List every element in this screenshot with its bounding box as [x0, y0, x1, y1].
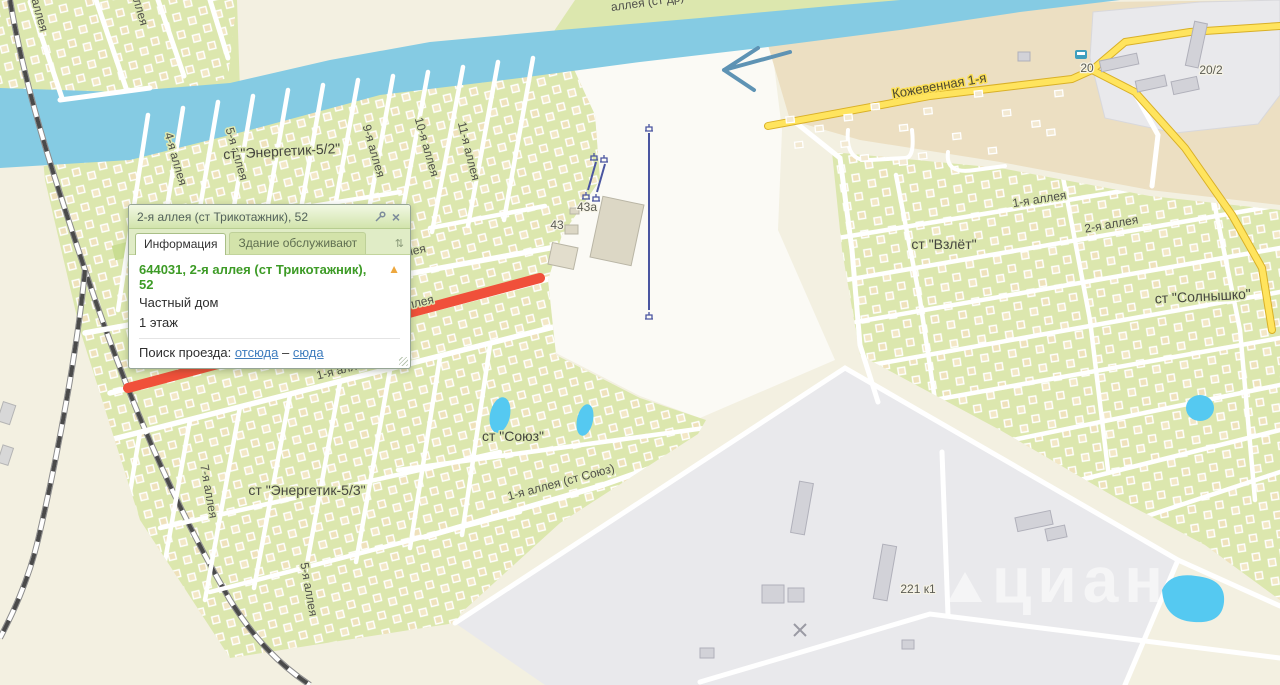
- route-label: Поиск проезда:: [139, 345, 231, 360]
- popup-tabs: Информация Здание обслуживают ⇅: [129, 229, 410, 255]
- pin-icon[interactable]: [372, 210, 388, 224]
- route-from-link[interactable]: отсюда: [235, 345, 279, 360]
- map-label: 43: [550, 218, 564, 232]
- map-label: ст "Взлёт": [911, 236, 976, 252]
- bus-stop-icon[interactable]: [1075, 50, 1087, 59]
- warning-icon: ▲: [388, 262, 400, 276]
- close-icon[interactable]: ×: [388, 210, 404, 224]
- tab-building-service[interactable]: Здание обслуживают: [229, 232, 366, 254]
- map-label: 20/2: [1199, 63, 1223, 77]
- route-to-link[interactable]: сюда: [293, 345, 324, 360]
- address-text: 644031, 2-я аллея (ст Трикотажник), 52: [139, 262, 382, 292]
- route-search-row: Поиск проезда: отсюда – сюда: [139, 338, 400, 360]
- popup-title: 2-я аллея (ст Трикотажник), 52: [137, 210, 372, 224]
- map-label: 221 к1: [900, 582, 936, 596]
- info-popup: 2-я аллея (ст Трикотажник), 52 × Информа…: [128, 204, 411, 369]
- route-dash: –: [282, 345, 289, 360]
- resize-grip-icon[interactable]: [399, 357, 408, 366]
- popup-header: 2-я аллея (ст Трикотажник), 52 ×: [129, 205, 410, 229]
- building-type: Частный дом: [139, 294, 400, 312]
- tab-information[interactable]: Информация: [135, 233, 226, 255]
- popup-body: 644031, 2-я аллея (ст Трикотажник), 52 ▲…: [129, 255, 410, 368]
- floors: 1 этаж: [139, 314, 400, 332]
- map-label: ст "Союз": [482, 428, 544, 444]
- map-label: ст "Энергетик-5/3": [248, 482, 365, 498]
- tabs-dropdown-icon[interactable]: ⇅: [395, 237, 404, 254]
- map-label: 43а: [577, 200, 597, 214]
- map-label: 20: [1080, 61, 1094, 75]
